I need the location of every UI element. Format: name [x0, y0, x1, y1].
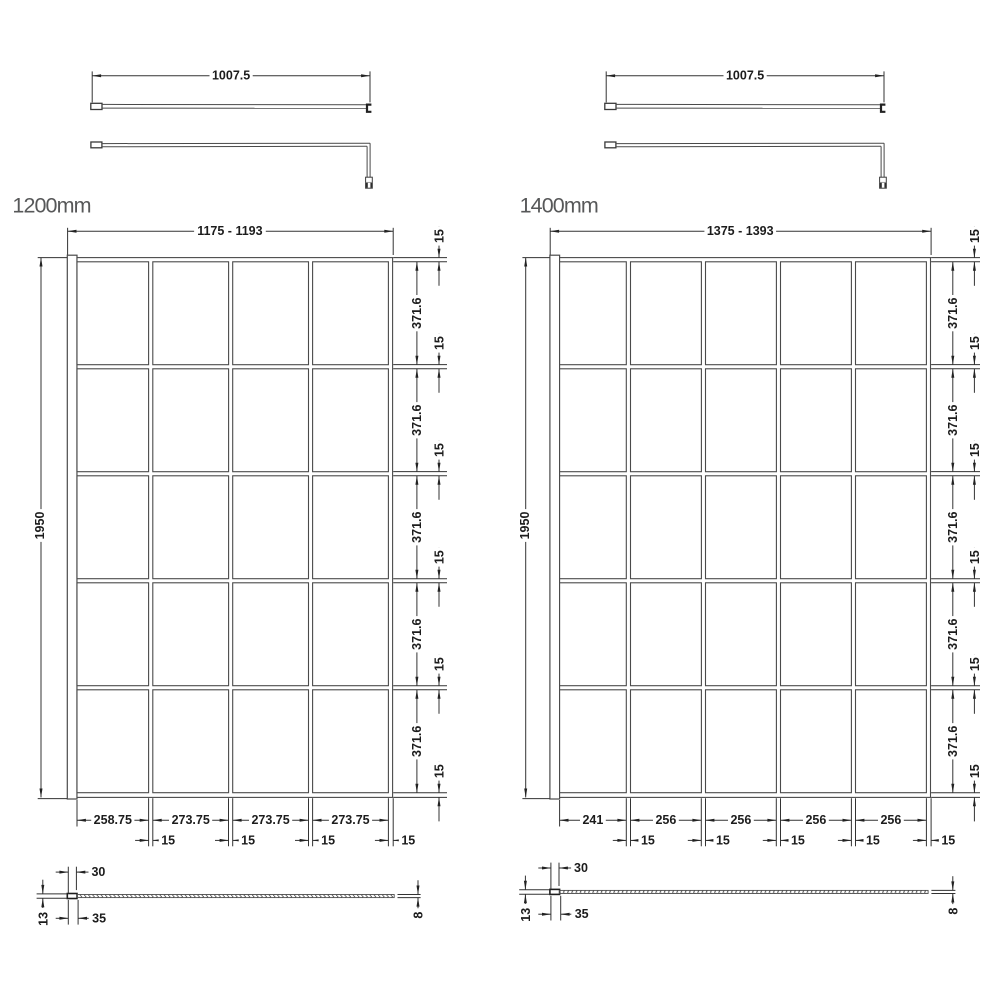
svg-text:15: 15 [241, 833, 255, 847]
svg-text:15: 15 [968, 764, 982, 778]
svg-text:371.6: 371.6 [410, 726, 424, 757]
svg-text:371.6: 371.6 [410, 298, 424, 329]
svg-text:256: 256 [655, 813, 676, 827]
svg-text:371.6: 371.6 [410, 512, 424, 543]
svg-text:15: 15 [432, 657, 446, 671]
svg-text:15: 15 [866, 833, 880, 847]
svg-text:371.6: 371.6 [946, 619, 960, 650]
svg-text:13: 13 [519, 908, 533, 922]
svg-text:371.6: 371.6 [946, 298, 960, 329]
svg-text:1400mm: 1400mm [520, 194, 598, 218]
svg-text:1375 - 1393: 1375 - 1393 [707, 224, 774, 238]
svg-text:371.6: 371.6 [410, 619, 424, 650]
svg-text:30: 30 [574, 861, 588, 875]
svg-text:15: 15 [432, 443, 446, 457]
svg-text:15: 15 [432, 229, 446, 243]
svg-text:13: 13 [37, 912, 51, 926]
svg-text:15: 15 [432, 764, 446, 778]
svg-text:15: 15 [432, 336, 446, 350]
svg-text:15: 15 [432, 550, 446, 564]
svg-text:15: 15 [968, 229, 982, 243]
svg-text:371.6: 371.6 [946, 405, 960, 436]
svg-text:8: 8 [946, 908, 960, 915]
svg-text:15: 15 [716, 833, 730, 847]
svg-text:273.75: 273.75 [251, 813, 289, 827]
svg-text:1950: 1950 [518, 512, 532, 540]
svg-text:371.6: 371.6 [946, 726, 960, 757]
svg-text:273.75: 273.75 [331, 813, 369, 827]
svg-text:15: 15 [161, 833, 175, 847]
svg-text:256: 256 [730, 813, 751, 827]
svg-text:15: 15 [641, 833, 655, 847]
svg-text:15: 15 [968, 336, 982, 350]
svg-text:30: 30 [91, 865, 105, 879]
svg-text:371.6: 371.6 [946, 512, 960, 543]
svg-text:1950: 1950 [33, 512, 47, 540]
svg-text:15: 15 [968, 550, 982, 564]
svg-text:15: 15 [791, 833, 805, 847]
svg-text:15: 15 [968, 443, 982, 457]
svg-text:35: 35 [575, 907, 589, 921]
svg-text:371.6: 371.6 [410, 405, 424, 436]
svg-text:8: 8 [412, 912, 426, 919]
svg-text:15: 15 [321, 833, 335, 847]
svg-text:15: 15 [401, 833, 415, 847]
svg-text:15: 15 [968, 657, 982, 671]
svg-text:1007.5: 1007.5 [212, 69, 250, 83]
svg-text:258.75: 258.75 [94, 813, 132, 827]
svg-text:256: 256 [880, 813, 901, 827]
svg-text:1007.5: 1007.5 [726, 69, 764, 83]
svg-text:1200mm: 1200mm [12, 194, 90, 218]
svg-text:241: 241 [582, 813, 603, 827]
svg-text:15: 15 [941, 833, 955, 847]
svg-text:273.75: 273.75 [172, 813, 210, 827]
svg-text:256: 256 [805, 813, 826, 827]
svg-text:1175 - 1193: 1175 - 1193 [197, 224, 262, 238]
svg-text:35: 35 [92, 911, 106, 925]
